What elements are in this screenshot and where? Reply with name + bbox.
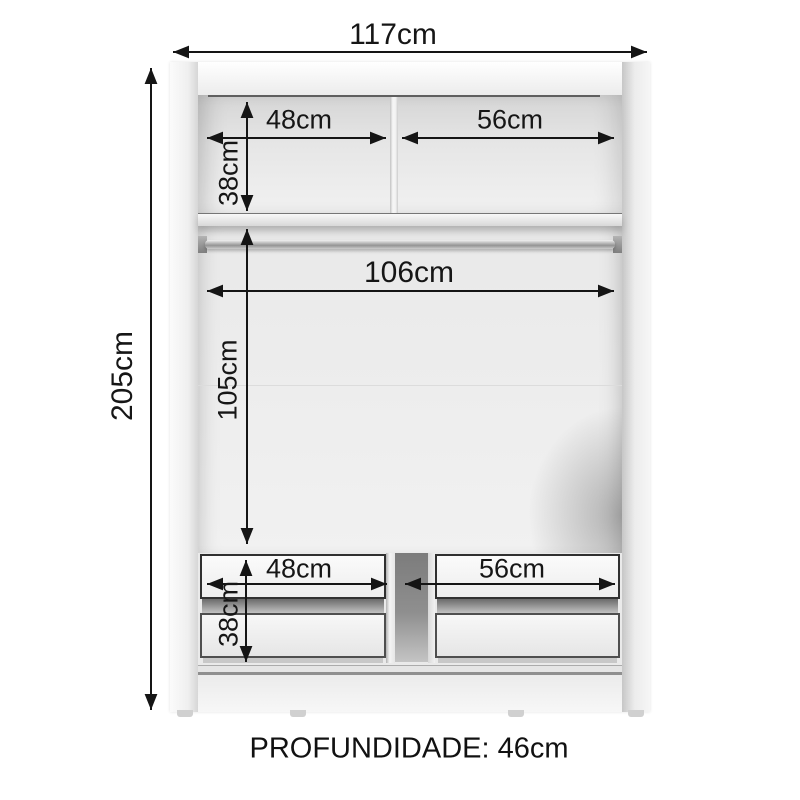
drawer-face-right-bottom xyxy=(435,613,620,658)
drawer-divider-recess xyxy=(395,553,428,662)
bottom-base-strip xyxy=(198,665,622,675)
drawer-shadow-right xyxy=(438,658,617,663)
drawer-gap-right xyxy=(437,599,618,613)
hanging-rod xyxy=(205,240,615,249)
wardrobe-foot xyxy=(177,710,193,717)
depth-note: PROFUNDIDADE: 46cm xyxy=(249,735,568,764)
interior-shadow xyxy=(492,365,622,553)
wardrobe-right-side-panel xyxy=(622,62,650,712)
drawer-section xyxy=(198,553,622,665)
wardrobe-foot xyxy=(628,710,644,717)
dim-label-bottom-left-width: 48cm xyxy=(266,556,332,583)
dim-label-overall-height: 205cm xyxy=(108,331,138,421)
wardrobe-top-rail xyxy=(198,62,622,95)
interior-top-edge-line xyxy=(208,95,600,97)
dim-label-middle-height: 105cm xyxy=(215,339,242,420)
drawer-shadow-left xyxy=(203,658,383,663)
dim-label-top-height: 38cm xyxy=(216,140,243,206)
dim-label-top-right-width: 56cm xyxy=(477,107,543,134)
dim-label-overall-width: 117cm xyxy=(349,20,437,50)
drawer-divider-wall-right xyxy=(428,553,435,663)
top-shelf-compartment xyxy=(198,95,622,213)
drawer-divider-wall-left xyxy=(386,553,395,663)
wardrobe-plinth xyxy=(198,675,622,712)
top-shelf-divider xyxy=(390,95,398,213)
wardrobe-foot xyxy=(508,710,524,717)
dim-label-bottom-right-width: 56cm xyxy=(479,556,545,583)
wardrobe-left-side-panel xyxy=(170,62,198,712)
dim-label-bottom-height: 38cm xyxy=(216,581,243,647)
wardrobe-interior xyxy=(198,95,622,675)
wardrobe-foot xyxy=(290,710,306,717)
dim-label-top-left-width: 48cm xyxy=(266,107,332,134)
dim-label-rod-span: 106cm xyxy=(364,258,454,288)
upper-shelf-board xyxy=(198,213,622,226)
diagram-canvas: 117cm 205cm 48cm 56cm 38cm 106cm 105cm 4… xyxy=(0,0,800,800)
